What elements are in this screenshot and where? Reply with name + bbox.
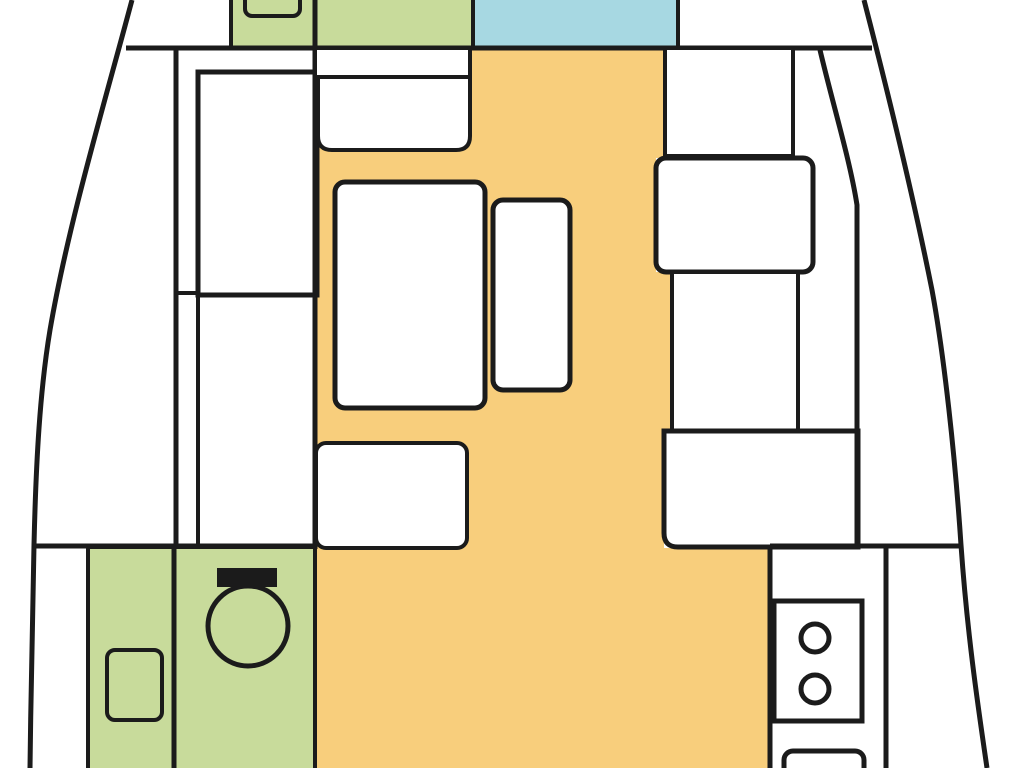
hull-stbd bbox=[864, 0, 987, 768]
fwd-head-room bbox=[315, 0, 473, 48]
stbd-cabinet-mid bbox=[672, 272, 798, 431]
salon-strip bbox=[317, 50, 470, 77]
stbd-cabinet-fwd bbox=[665, 48, 793, 156]
stbd-chart-table bbox=[664, 431, 858, 547]
salon-table bbox=[335, 182, 485, 408]
fwd-shower-room bbox=[473, 0, 678, 48]
stove-burner-aft bbox=[801, 675, 829, 703]
salon-seat-fwd bbox=[318, 77, 470, 150]
fwd-head-sink bbox=[245, 0, 300, 16]
galley-sink bbox=[784, 751, 864, 768]
stbd-seat bbox=[656, 158, 813, 272]
toilet-tank bbox=[217, 568, 277, 587]
port-berth bbox=[198, 72, 317, 295]
toilet-bowl bbox=[208, 586, 288, 666]
aft-head-sink bbox=[107, 650, 162, 720]
boat-floor-plan bbox=[0, 0, 1024, 768]
salon-bench bbox=[493, 200, 570, 390]
floor-plan-svg bbox=[0, 0, 1024, 768]
salon-seat-aft bbox=[316, 443, 467, 548]
stove-burner-fwd bbox=[801, 624, 829, 652]
